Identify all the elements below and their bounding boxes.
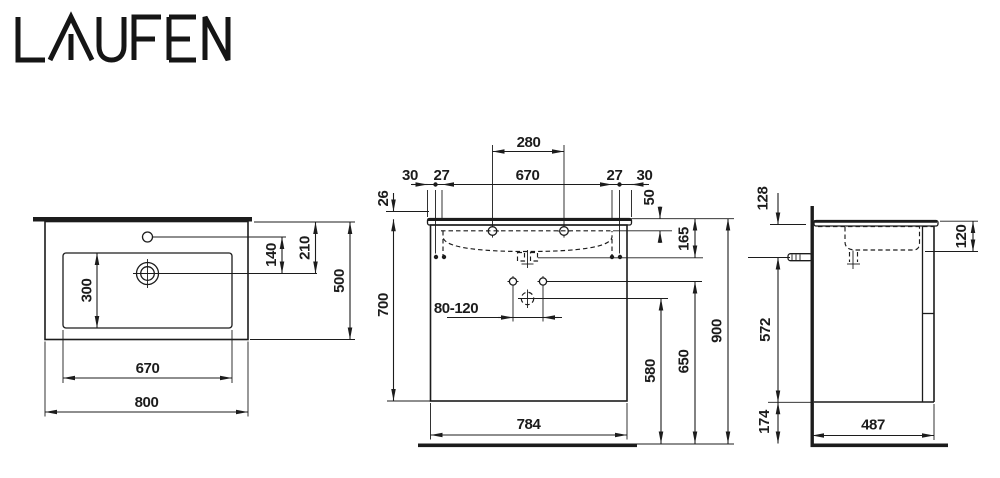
dim-total-height-label: 900	[709, 319, 726, 343]
side-view: 128 572 174 120 487	[748, 187, 978, 448]
dim-fixing-range-label: 80-120	[434, 300, 478, 317]
dim-cabinet-height-label: 572	[757, 318, 774, 342]
siphon-pipe	[788, 254, 812, 261]
dim-top-to-taphole-label: 50	[641, 190, 658, 206]
front-drain-dashed	[518, 250, 538, 268]
dim-edge-right-label: 30	[637, 167, 653, 184]
dim-total-depth-label: 500	[331, 269, 348, 293]
dim-top-to-bottom-label: 700	[375, 293, 392, 317]
dim-cabinet-depth-label: 487	[861, 417, 885, 434]
wall-fixing-hole-left	[508, 276, 519, 287]
side-drain-dashed	[847, 251, 860, 270]
fixing-dowel	[618, 255, 622, 259]
dim-edge-left-label: 30	[402, 167, 418, 184]
dim-basin-depth-label: 300	[79, 279, 96, 303]
dim-front-basin-width-label: 670	[516, 167, 540, 184]
tap-hole	[143, 232, 153, 242]
technical-drawing: 300 140 210 500 670 800	[0, 0, 1000, 478]
dim-top-to-siphon-label: 128	[755, 187, 772, 211]
front-view: 280 30 27 670 27 30 26 700 50 1	[375, 134, 734, 447]
front-bowl-dashed	[443, 231, 612, 252]
side-floor-line	[811, 444, 949, 448]
dim-basin-width-label: 670	[136, 360, 160, 377]
dim-bowl-depth-label: 120	[953, 225, 970, 249]
wall-fixing-hole-right	[538, 276, 549, 287]
logo-letter-f	[134, 17, 161, 60]
laufen-logo	[18, 17, 228, 60]
side-bowl-dashed	[845, 227, 920, 250]
logo-letter-l	[18, 17, 45, 60]
fixing-dowel	[434, 255, 438, 259]
top-view: 300 140 210 500 670 800	[33, 217, 355, 417]
dim-fixing-height-label: 650	[676, 350, 693, 374]
logo-letter-u	[99, 17, 124, 60]
logo-letter-e	[169, 17, 196, 60]
dim-drain-height-label: 580	[642, 359, 659, 383]
front-floor-line	[418, 444, 637, 448]
dim-tap-spacing-label: 280	[517, 134, 541, 151]
fixing-dowel	[610, 255, 614, 259]
wall-line	[811, 206, 814, 447]
dim-basin-height-label: 165	[676, 227, 693, 251]
drain-crosshair	[133, 259, 162, 288]
fixing-dowel	[442, 255, 446, 259]
logo-letter-n	[205, 17, 228, 60]
logo-letter-a	[50, 17, 92, 60]
dim-tap-to-drain-label: 140	[263, 243, 280, 267]
dim-total-width-label: 800	[135, 394, 159, 411]
dim-edge-to-drain-label: 210	[297, 236, 314, 260]
dim-dowel-left-label: 27	[434, 167, 450, 184]
dim-cabinet-width-label: 784	[517, 416, 542, 433]
dim-dowel-right-label: 27	[607, 167, 623, 184]
dim-rim-height-label: 26	[375, 191, 392, 207]
laufen-dimension-drawing: 300 140 210 500 670 800	[0, 0, 1000, 478]
dim-floor-clearance-label: 174	[756, 409, 773, 434]
